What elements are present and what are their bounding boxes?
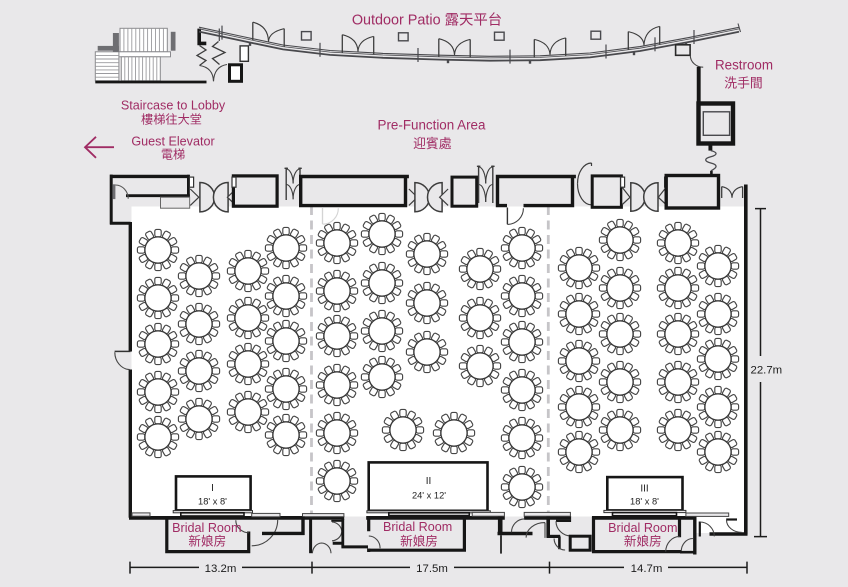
svg-text:新娘房: 新娘房 [624, 534, 662, 549]
svg-text:18' x 8': 18' x 8' [630, 497, 659, 507]
svg-text:迎賓處: 迎賓處 [413, 136, 452, 151]
svg-text:樓梯往大堂: 樓梯往大堂 [141, 112, 202, 127]
svg-text:14.7m: 14.7m [631, 563, 663, 575]
svg-text:電梯: 電梯 [161, 148, 185, 162]
svg-text:II: II [426, 476, 432, 487]
svg-text:Bridal Room: Bridal Room [172, 521, 241, 535]
svg-text:Bridal Room: Bridal Room [608, 521, 677, 535]
svg-text:洗手間: 洗手間 [724, 76, 762, 91]
svg-text:Bridal Room: Bridal Room [383, 520, 452, 534]
svg-text:Pre-Function Area: Pre-Function Area [378, 118, 486, 133]
svg-text:Restroom: Restroom [715, 58, 773, 73]
svg-text:新娘房: 新娘房 [188, 534, 226, 549]
svg-text:Staircase to Lobby: Staircase to Lobby [121, 99, 226, 113]
svg-text:Outdoor Patio 露天平台: Outdoor Patio 露天平台 [352, 12, 502, 29]
svg-text:新娘房: 新娘房 [400, 534, 438, 549]
svg-text:13.2m: 13.2m [205, 563, 237, 575]
svg-text:I: I [211, 483, 214, 494]
svg-text:18' x 8': 18' x 8' [198, 497, 227, 507]
svg-text:24' x 12': 24' x 12' [412, 490, 446, 500]
svg-text:III: III [640, 484, 648, 495]
svg-text:Guest Elevator: Guest Elevator [131, 135, 214, 149]
svg-text:22.7m: 22.7m [751, 364, 783, 376]
svg-text:17.5m: 17.5m [416, 563, 448, 575]
